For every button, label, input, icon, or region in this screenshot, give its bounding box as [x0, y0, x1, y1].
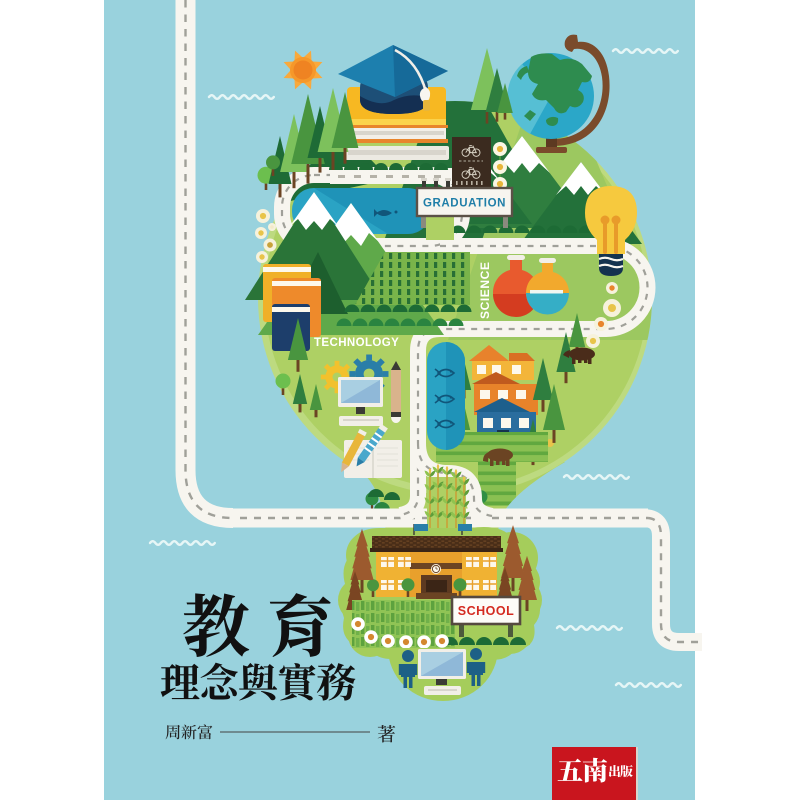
svg-text:SCHOOL: SCHOOL	[458, 604, 514, 618]
svg-text:GRADUATION: GRADUATION	[423, 198, 506, 210]
svg-text:SCIENCE: SCIENCE	[478, 261, 492, 319]
svg-text:TECHNOLOGY: TECHNOLOGY	[314, 337, 399, 349]
